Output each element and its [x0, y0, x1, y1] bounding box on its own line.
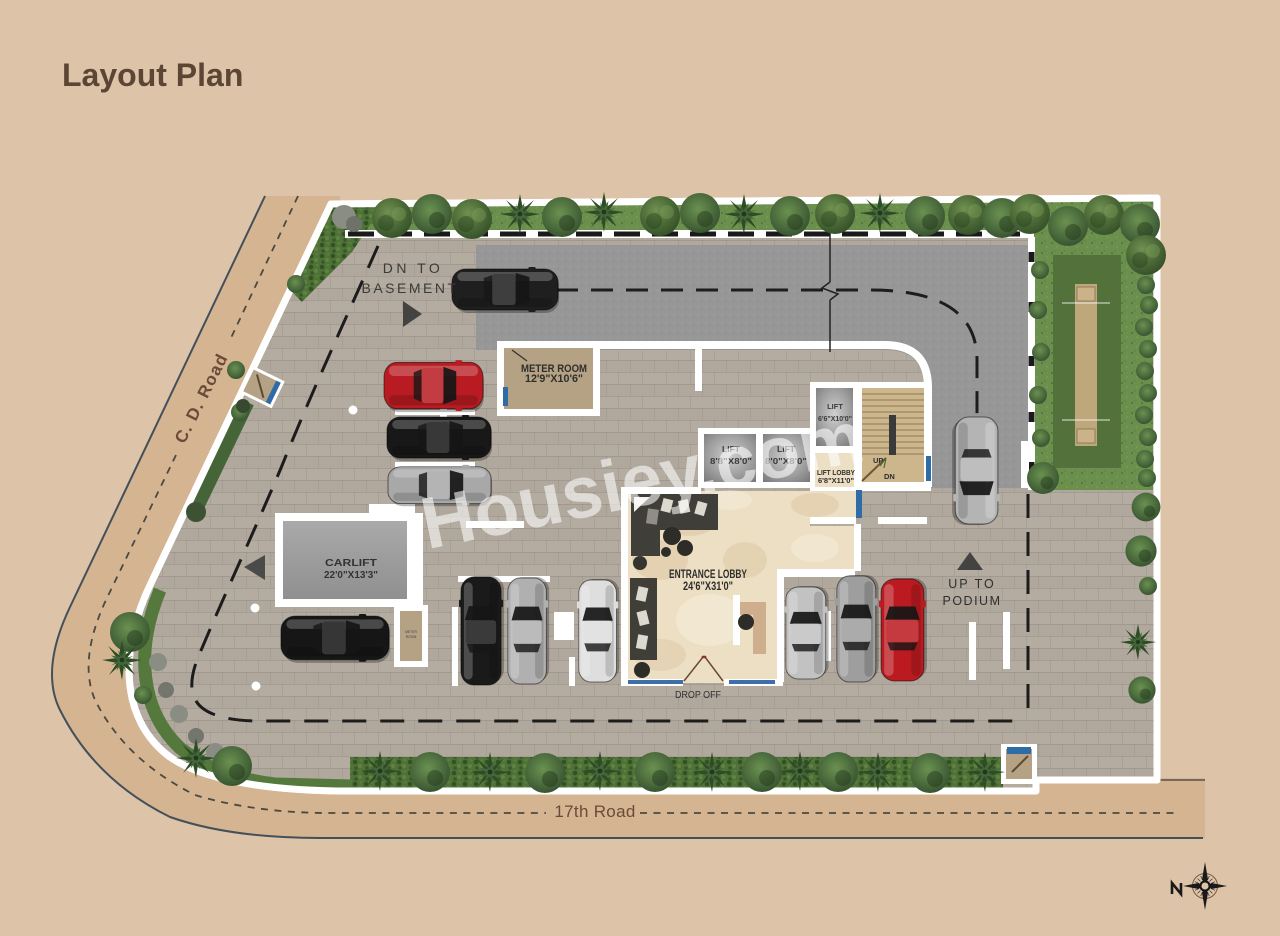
svg-text:22'0"X13'3": 22'0"X13'3": [324, 569, 378, 581]
svg-text:17th Road: 17th Road: [554, 802, 635, 821]
svg-text:BASEMENT: BASEMENT: [361, 280, 458, 296]
svg-text:UP TO: UP TO: [948, 577, 996, 591]
svg-text:PODIUM: PODIUM: [943, 594, 1002, 608]
svg-text:Layout Plan: Layout Plan: [62, 57, 243, 93]
svg-text:ROOM: ROOM: [406, 635, 417, 639]
svg-text:12'9"X10'6": 12'9"X10'6": [525, 373, 583, 385]
svg-text:DN TO: DN TO: [383, 260, 444, 276]
svg-text:DROP OFF: DROP OFF: [675, 689, 721, 701]
svg-text:DN: DN: [884, 472, 895, 481]
svg-text:METER: METER: [405, 630, 417, 634]
svg-text:CARLIFT: CARLIFT: [325, 557, 378, 569]
svg-text:UP: UP: [873, 456, 883, 465]
svg-text:24'6"X31'0": 24'6"X31'0": [683, 579, 733, 593]
